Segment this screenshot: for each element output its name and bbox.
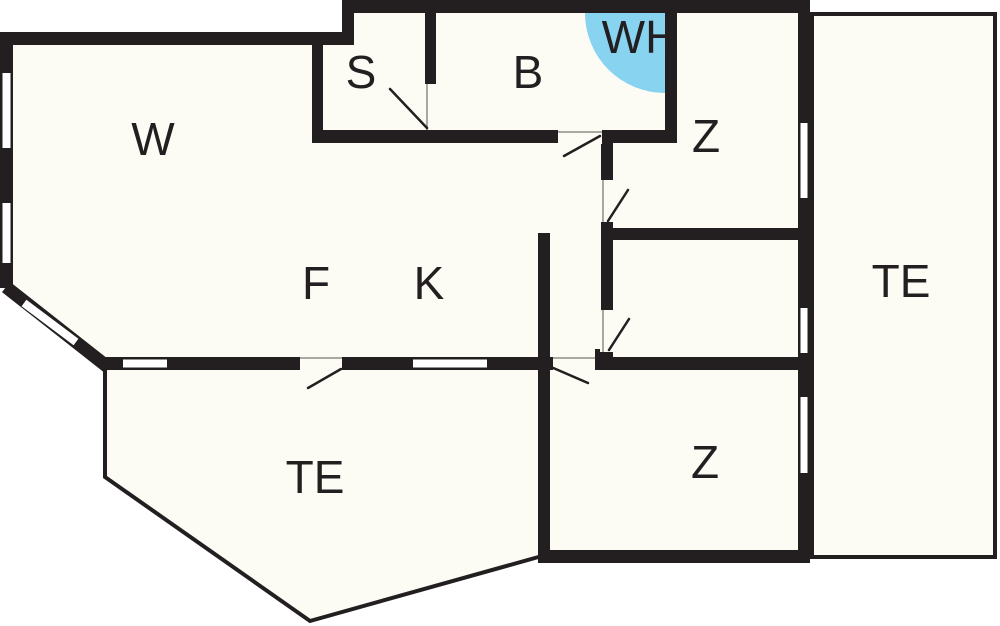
window-right-2	[801, 308, 808, 353]
threshold-middle-room	[602, 310, 604, 352]
window-bottom-1	[123, 360, 167, 368]
wall-top-main	[342, 0, 810, 13]
room-label-whirlpool: WH	[602, 11, 679, 63]
wall-top-left-section	[0, 32, 354, 45]
threshold-sauna	[426, 84, 428, 130]
wall-living-sauna	[312, 43, 323, 143]
room-label-kitchen: K	[414, 257, 445, 309]
room-label-terrace-right: TE	[872, 255, 931, 307]
window-right-1	[801, 123, 808, 198]
room-label-terrace-bottom: TE	[286, 451, 345, 503]
threshold-bath	[558, 131, 602, 133]
wall-bedroom-divider	[601, 228, 810, 240]
wall-bedroom-bottom	[538, 550, 810, 563]
threshold-bedroom-top	[602, 180, 604, 222]
room-label-bath: B	[513, 46, 544, 98]
window-left-2	[3, 203, 11, 263]
threshold-bedroom-bot	[553, 357, 595, 359]
window-left-1	[3, 73, 11, 148]
window-right-3	[801, 397, 808, 473]
wall-bath-bottom	[312, 130, 677, 143]
room-label-bedroom-bot: Z	[691, 436, 719, 488]
room-label-bedroom-top: Z	[692, 110, 720, 162]
room-label-sauna: S	[346, 46, 377, 98]
room-label-living: W	[131, 113, 175, 165]
wall-kitchen-bedroom	[538, 233, 550, 563]
room-label-hall: F	[302, 257, 330, 309]
floor-plan-canvas: W S B WH Z F K TE Z TE	[0, 0, 1000, 626]
window-bottom-2	[413, 360, 487, 368]
wall-sauna-bath	[425, 0, 436, 84]
wall-right	[798, 0, 810, 563]
threshold-terrace	[300, 357, 342, 359]
